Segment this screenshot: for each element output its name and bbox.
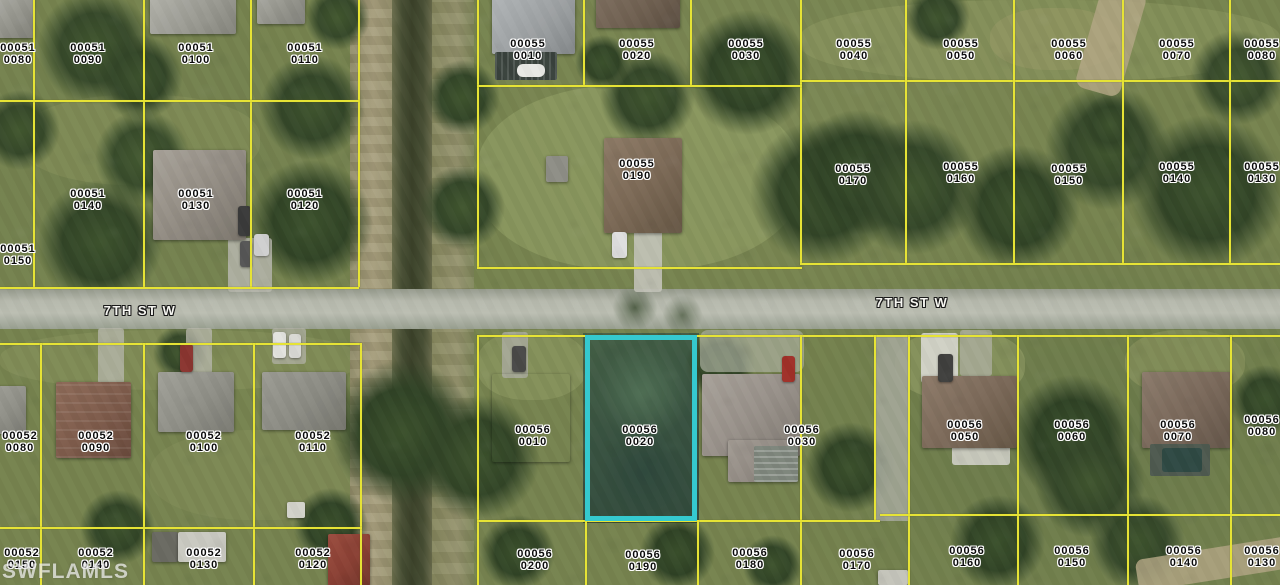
parcel-line xyxy=(583,0,585,85)
parcel-label-00055-0190: 000550190 xyxy=(619,158,655,182)
parcel-label-00055-0020: 000550020 xyxy=(619,38,655,62)
parcel-label-00051-0140: 000510140 xyxy=(70,188,106,212)
parcel-label-00056-0030: 000560030 xyxy=(784,424,820,448)
house-roof xyxy=(604,138,682,233)
car xyxy=(512,346,526,372)
parcel-line xyxy=(1229,0,1231,263)
parcel-label-00056-0130: 000560130 xyxy=(1244,545,1280,569)
parcel-label-00056-0180: 000560180 xyxy=(732,547,768,571)
boat xyxy=(517,64,545,77)
parcel-line xyxy=(1017,335,1019,585)
parcel-line xyxy=(0,287,359,289)
parcel-label-00055-0150: 000550150 xyxy=(1051,163,1087,187)
parcel-line xyxy=(1122,0,1124,263)
parcel-label-00055-0160: 000550160 xyxy=(943,161,979,185)
tree-canopy xyxy=(250,55,375,160)
pool-enclosure xyxy=(754,446,798,482)
parcel-line xyxy=(0,343,361,345)
parcel-line xyxy=(360,343,362,585)
tree-canopy xyxy=(420,145,505,270)
parcel-label-00056-0190: 000560190 xyxy=(625,549,661,573)
driveway xyxy=(98,328,124,384)
parcel-label-00055-0070: 000550070 xyxy=(1159,38,1195,62)
parcel-label-00055-0060: 000550060 xyxy=(1051,38,1087,62)
parcel-label-00051-0100: 000510100 xyxy=(178,42,214,66)
parcel-label-00056-0160: 000560160 xyxy=(949,545,985,569)
tree-canopy xyxy=(425,55,500,140)
house-roof xyxy=(596,0,680,28)
car xyxy=(289,334,301,358)
parcel-label-00056-0070: 000560070 xyxy=(1160,419,1196,443)
parcel-line xyxy=(908,335,910,585)
parcel-line xyxy=(800,80,1280,82)
parcel-label-00055-0140: 000550140 xyxy=(1159,161,1195,185)
house-roof xyxy=(257,0,305,24)
parcel-label-00056-0150: 000560150 xyxy=(1054,545,1090,569)
parcel-line xyxy=(690,0,692,85)
house-roof xyxy=(262,372,346,430)
parcel-label-00056-0010: 000560010 xyxy=(515,424,551,448)
parcel-line xyxy=(477,335,479,585)
house-roof xyxy=(492,374,570,462)
parcel-line xyxy=(40,343,42,585)
parcel-line xyxy=(143,343,145,585)
tree-canopy xyxy=(675,10,820,135)
parcel-line xyxy=(0,527,362,529)
parcel-label-00055-0170: 000550170 xyxy=(835,163,871,187)
parcel-label-00051-0080: 000510080 xyxy=(0,42,36,66)
tree-shadow xyxy=(655,295,710,335)
parcel-line xyxy=(874,335,876,521)
parcel-line xyxy=(1013,0,1015,263)
parcel-label-00055-0050: 000550050 xyxy=(943,38,979,62)
parcel-line xyxy=(0,100,359,102)
parcel-label-00052-0090: 000520090 xyxy=(78,430,114,454)
parcel-label-00056-0170: 000560170 xyxy=(839,548,875,572)
shed-roof xyxy=(546,156,568,182)
parcel-line xyxy=(905,0,907,263)
parcel-line xyxy=(880,514,1280,516)
street-name-label: 7TH ST W xyxy=(876,295,949,310)
pool xyxy=(1162,448,1202,472)
shed-roof xyxy=(878,570,908,585)
parcel-line xyxy=(250,0,252,287)
parcel-label-00056-0060: 000560060 xyxy=(1054,419,1090,443)
parcel-label-00056-0200: 000560200 xyxy=(517,548,553,572)
parcel-label-00051-0120: 000510120 xyxy=(287,188,323,212)
house-roof xyxy=(0,386,26,434)
shed-roof xyxy=(287,502,305,518)
parcel-label-00055-0010: 000550010 xyxy=(510,38,546,62)
parcel-label-00056-0050: 000560050 xyxy=(947,419,983,443)
car xyxy=(254,234,269,256)
parcel-label-00052-0110: 000520110 xyxy=(295,430,331,454)
car xyxy=(782,356,795,382)
parcel-line xyxy=(697,520,699,585)
parcel-line xyxy=(585,520,587,585)
parcel-line xyxy=(477,85,802,87)
parcel-line xyxy=(477,0,479,267)
tree-canopy xyxy=(700,535,845,585)
truck xyxy=(180,344,193,372)
shed-roof xyxy=(152,532,178,562)
car xyxy=(612,232,627,258)
parcel-line xyxy=(1230,335,1232,585)
mls-watermark: SWFLAMLS xyxy=(2,560,129,584)
parcel-label-00052-0080: 000520080 xyxy=(2,430,38,454)
house-roof xyxy=(328,534,370,585)
parcel-label-00051-0090: 000510090 xyxy=(70,42,106,66)
tree-canopy xyxy=(1125,115,1280,270)
house-roof xyxy=(0,0,34,38)
parcel-line xyxy=(1127,335,1129,585)
parcel-label-00056-0020: 000560020 xyxy=(622,424,658,448)
parcel-label-00052-0120: 000520120 xyxy=(295,547,331,571)
parcel-label-00056-0140: 000560140 xyxy=(1166,545,1202,569)
parcel-line xyxy=(800,263,1280,265)
parcel-label-00055-0130: 000550130 xyxy=(1244,161,1280,185)
parcel-label-00051-0110: 000510110 xyxy=(287,42,323,66)
parcel-line xyxy=(143,0,145,287)
house-roof xyxy=(150,0,236,34)
house-roof xyxy=(158,372,234,432)
parcel-label-00055-0030: 000550030 xyxy=(728,38,764,62)
parcel-label-00051-0130: 000510130 xyxy=(178,188,214,212)
parcel-line xyxy=(253,343,255,585)
tree-canopy xyxy=(1075,95,1145,155)
driveway xyxy=(876,335,908,521)
car xyxy=(273,332,286,358)
parcel-label-00055-0040: 000550040 xyxy=(836,38,872,62)
parcel-line xyxy=(358,0,360,287)
parcel-line xyxy=(800,0,802,265)
street-name-label: 7TH ST W xyxy=(104,303,177,318)
parcel-label-00052-0130: 000520130 xyxy=(186,547,222,571)
parcel-line xyxy=(800,335,802,585)
parcel-label-00056-0080: 000560080 xyxy=(1244,414,1280,438)
parcel-line xyxy=(477,267,802,269)
aerial-parcel-map: 0005100800005100900005101000005101100005… xyxy=(0,0,1280,585)
driveway xyxy=(634,230,662,292)
parcel-label-00055-0080: 000550080 xyxy=(1244,38,1280,62)
parcel-label-00052-0100: 000520100 xyxy=(186,430,222,454)
car xyxy=(938,354,953,382)
parcel-label-00051-0150: 000510150 xyxy=(0,243,36,267)
